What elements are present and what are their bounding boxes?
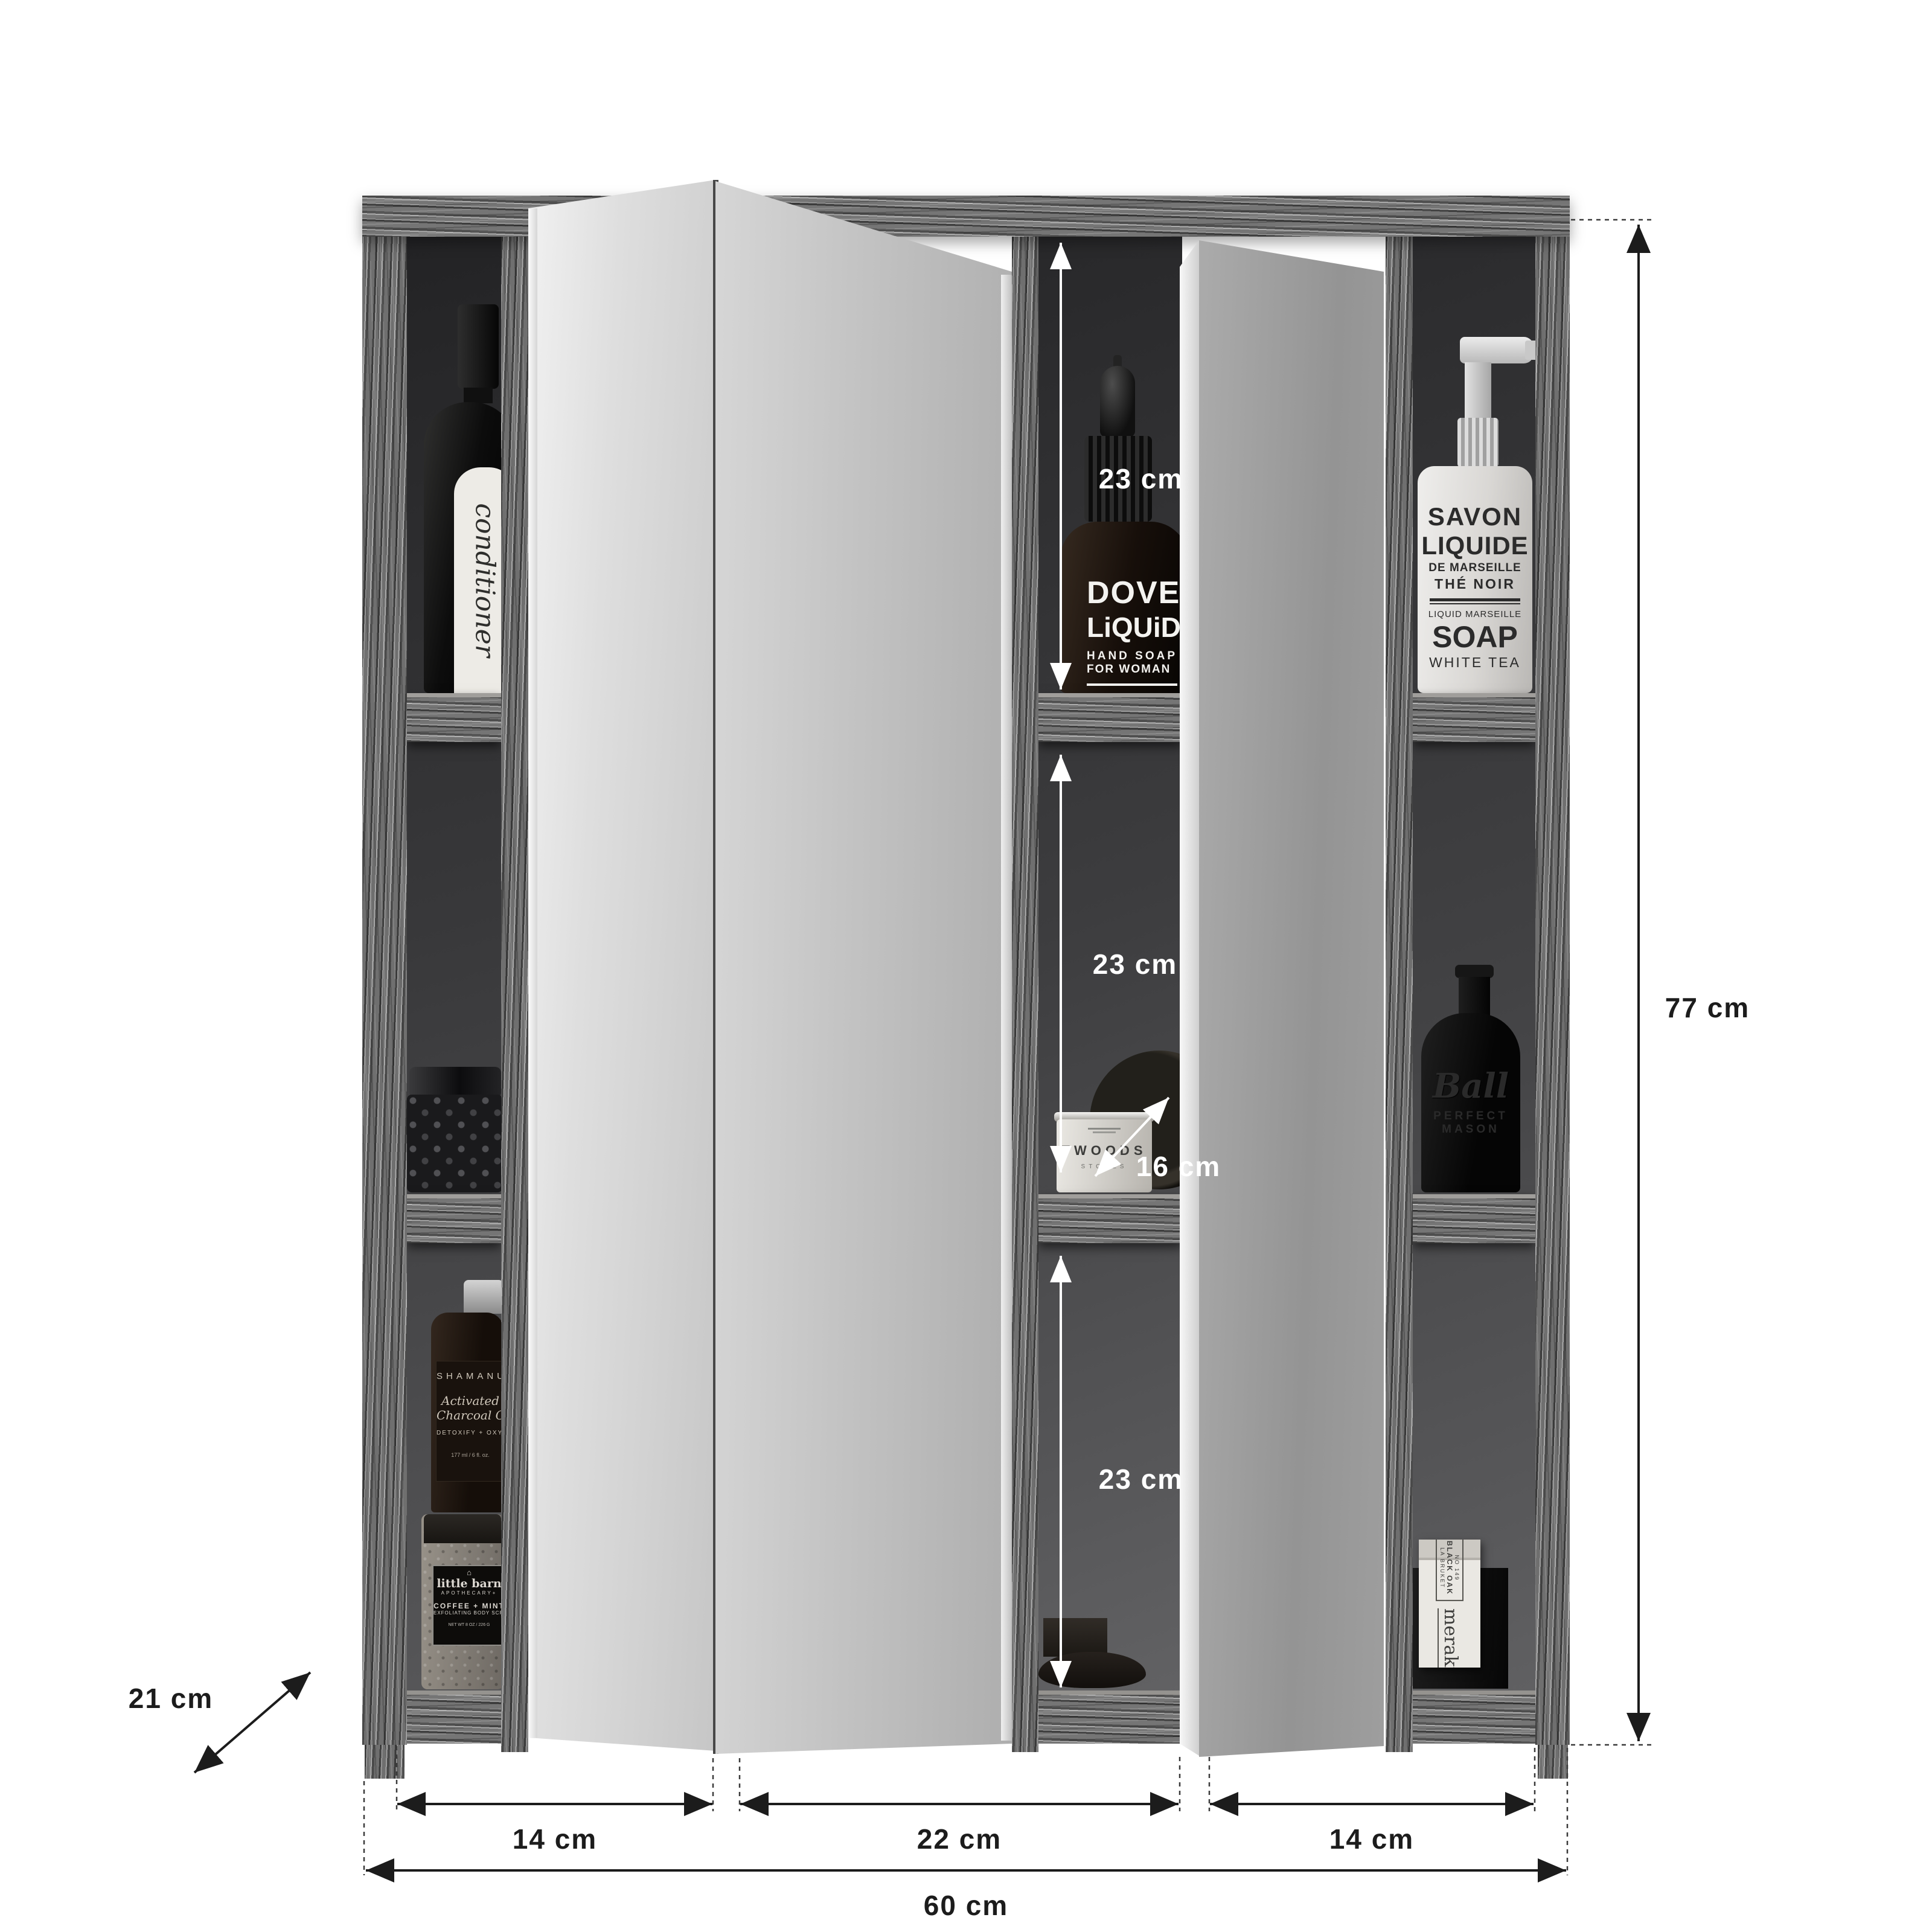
- meraki-label: NO 149 BLACK OAK LA BRUKET meraki: [1419, 1540, 1480, 1668]
- house-icon: ⌂: [433, 1569, 501, 1577]
- meraki-brand: meraki: [1438, 1608, 1462, 1668]
- label-section-right: 14 cm: [1329, 1823, 1414, 1855]
- savon-rule-thick: [1430, 598, 1520, 601]
- ball-bottle: Ball PERFECT MASON: [1421, 1013, 1520, 1192]
- littlebarn-line5: NET WT 8 OZ / 226 G: [433, 1623, 501, 1627]
- mirror-door-left-edge: [528, 208, 537, 1738]
- bottom-board: [407, 1690, 501, 1744]
- conditioner-pump-cap: [458, 304, 499, 389]
- mirror-door-left-panel-b-edge: [1001, 275, 1012, 1741]
- shelf: [1038, 693, 1182, 742]
- ball-line2: PERFECT: [1421, 1110, 1520, 1123]
- bottom-board: [1038, 1690, 1182, 1744]
- littlebarn-line4: EXFOLIATING BODY SCRUB: [433, 1610, 501, 1616]
- savon-rule-thin: [1430, 603, 1520, 604]
- shamanuti-line5: 177 ml / 6 fl. oz.: [437, 1452, 501, 1458]
- savon-line7: WHITE TEA: [1418, 654, 1532, 671]
- savon-line4: THÉ NOIR: [1418, 576, 1532, 592]
- dark-box: [1043, 1618, 1107, 1657]
- label-shelf-depth: 16 cm: [1136, 1150, 1221, 1183]
- right-side-panel: [1535, 196, 1570, 1745]
- savon-label: SAVON LIQUIDE DE MARSEILLE THÉ NOIR LIQU…: [1418, 502, 1532, 671]
- ornate-jar-body: [407, 1095, 501, 1192]
- divider-middle: [1012, 237, 1038, 1752]
- shelf: [407, 1194, 501, 1243]
- dove-line3: HAND SOAP: [1087, 650, 1182, 663]
- meraki-line1: NO 149: [1454, 1541, 1460, 1595]
- ornate-jar-lid: [409, 1067, 501, 1098]
- littlebarn-brand: little barn: [433, 1577, 501, 1590]
- shelf: [1413, 1194, 1535, 1243]
- ball-bottle-lip: [1455, 965, 1494, 978]
- conditioner-label: conditioner: [454, 467, 501, 693]
- label-compartment-top: 23 cm: [1099, 462, 1183, 495]
- ball-line3: MASON: [1421, 1123, 1520, 1136]
- savon-line3: DE MARSEILLE: [1418, 561, 1532, 575]
- dove-line4: FOR WOMAN: [1087, 663, 1182, 676]
- savon-line2: LIQUIDE: [1418, 531, 1532, 560]
- savon-pump-stem: [1465, 362, 1491, 419]
- mirror-door-left-panel-a: [528, 180, 715, 1756]
- twoods-deco-line: [1088, 1128, 1121, 1130]
- dove-line2: LiQUiD: [1087, 611, 1182, 644]
- label-depth: 21 cm: [129, 1682, 213, 1715]
- littlebarn-line2: APOTHECARY+: [433, 1590, 501, 1596]
- meraki-line2: BLACK OAK: [1445, 1541, 1454, 1595]
- left-side-panel: [362, 196, 407, 1745]
- left-shelf-column: conditioner SHAMANUTI Activated Charcoal…: [407, 237, 501, 1744]
- dimension-diagram: conditioner SHAMANUTI Activated Charcoal…: [0, 0, 1932, 1932]
- conditioner-neck: [464, 388, 493, 403]
- dove-line1: DOVE: [1087, 575, 1182, 611]
- dark-tray: [1038, 1652, 1146, 1688]
- right-foot: [1538, 1745, 1568, 1779]
- divider-left: [501, 237, 528, 1752]
- shelf: [407, 693, 501, 742]
- dove-dropper-dome: [1100, 366, 1135, 437]
- savon-pump-collar: [1457, 418, 1499, 467]
- littlebarn-label: ⌂ little barn APOTHECARY+ COFFEE + MINT …: [432, 1565, 501, 1646]
- divider-right: [1386, 237, 1413, 1752]
- bottom-board: [1413, 1690, 1535, 1744]
- conditioner-label-text: conditioner: [470, 503, 501, 657]
- shamanuti-line4: DETOXIFY + OXYGENATE: [437, 1430, 501, 1436]
- mirror-door-right-panel: [1199, 240, 1384, 1758]
- left-foot: [365, 1745, 405, 1779]
- label-section-left: 14 cm: [513, 1823, 597, 1855]
- shamanuti-label: SHAMANUTI Activated Charcoal Cleanser DE…: [436, 1361, 501, 1482]
- savon-line5: LIQUID MARSEILLE: [1418, 609, 1532, 619]
- label-compartment-bottom: 23 cm: [1099, 1463, 1183, 1495]
- twoods-deco-line: [1093, 1131, 1116, 1133]
- ball-script: Ball: [1421, 1066, 1520, 1106]
- littlebarn-lid: [424, 1514, 501, 1543]
- ball-bottle-neck: [1459, 977, 1490, 1016]
- savon-pump-nozzle: [1460, 337, 1534, 363]
- littlebarn-line3: COFFEE + MINT: [433, 1602, 501, 1610]
- shamanuti-line2: Activated: [437, 1393, 501, 1408]
- mirror-door-left-panel-b: [715, 181, 1012, 1757]
- shamanuti-brand: SHAMANUTI: [437, 1371, 501, 1381]
- savon-line6: SOAP: [1418, 619, 1532, 654]
- label-section-middle: 22 cm: [917, 1823, 1002, 1855]
- shelf: [1038, 1194, 1182, 1243]
- dove-rule: [1087, 683, 1177, 686]
- label-height: 77 cm: [1665, 991, 1750, 1024]
- meraki-line3: LA BRUKET: [1439, 1541, 1445, 1595]
- savon-pump-spout: [1525, 341, 1535, 360]
- shamanuti-cap: [464, 1280, 501, 1314]
- right-shelf-column: SAVON LIQUIDE DE MARSEILLE THÉ NOIR LIQU…: [1413, 237, 1535, 1744]
- savon-line1: SAVON: [1418, 502, 1532, 531]
- meraki-label-badge: NO 149 BLACK OAK LA BRUKET: [1436, 1540, 1463, 1601]
- label-width-total: 60 cm: [924, 1889, 1008, 1922]
- shamanuti-line3: Charcoal Cleanser: [437, 1408, 501, 1422]
- label-compartment-middle: 23 cm: [1093, 948, 1177, 980]
- shelf: [1413, 693, 1535, 742]
